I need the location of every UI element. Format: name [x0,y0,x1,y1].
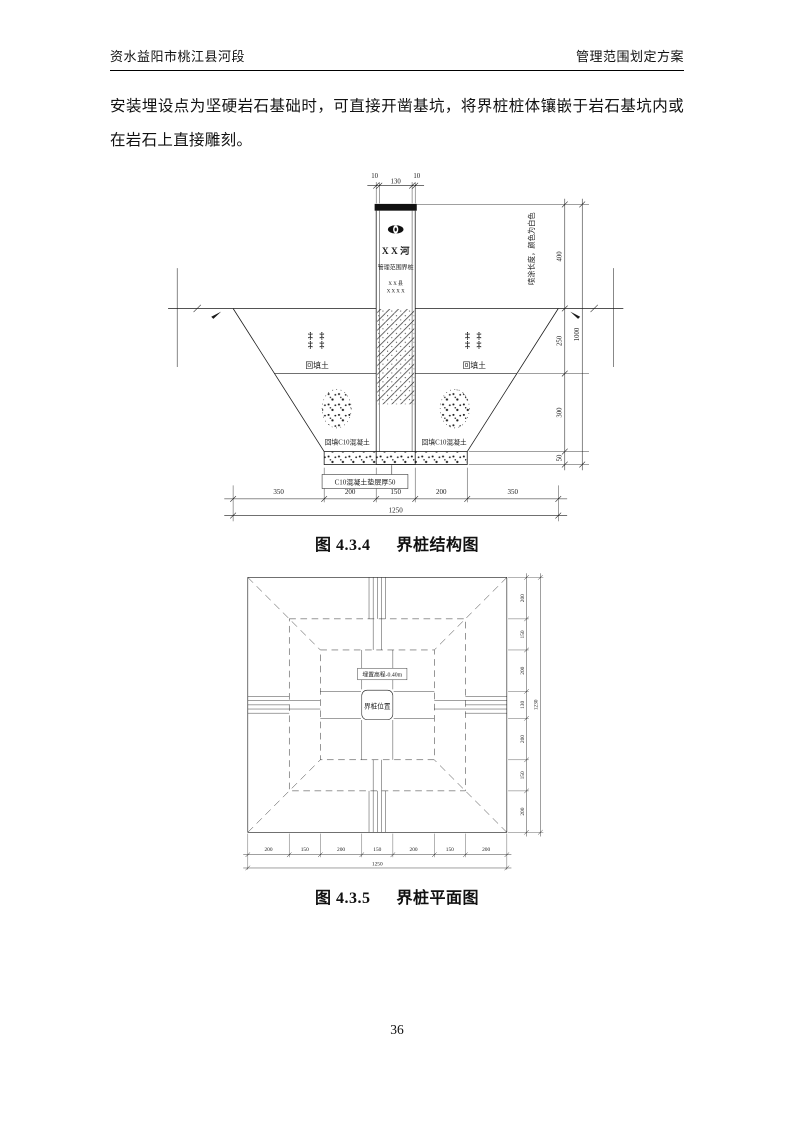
plan-dim-b1: 150 [301,847,309,853]
slope-arrow-icon [570,312,580,319]
dim-right-50: 50 [556,454,563,461]
plan-dim-b6: 200 [482,847,490,853]
pile-position-label: 界桩位置 [364,701,391,710]
plan-dim-r1: 150 [520,630,526,638]
plan-dim-b4: 200 [410,847,418,853]
dim-top-mid: 130 [391,179,402,186]
backfill-concrete-label: 回填C10混凝土 [325,437,370,446]
dim-top-left: 10 [371,173,378,180]
dim-right-total: 1000 [574,327,581,341]
dim-right-250: 250 [556,335,563,346]
dim-bot-2: 150 [390,488,401,496]
backfill-soil-label: 回填土 [305,360,329,370]
plan-bottom-dimension: 200 150 200 150 200 150 200 1250 [243,834,511,871]
dim-bot-4: 350 [507,488,518,496]
plan-dim-b2: 200 [337,847,345,853]
figure-plan-caption: 图 4.3.5界桩平面图 [315,884,479,908]
header-rule [110,70,684,71]
backfill-concrete-right: 回填C10混凝土 [422,389,470,446]
caption-number: 图 4.3.5 [315,890,371,907]
figure-structure: X X 河 管理范围界桩 X X 县 X X X X ‡ ‡ ‡ ‡ 回填土 ‡… [110,168,684,555]
plan-dim-r0: 200 [520,594,526,602]
plan-dim-r5: 150 [520,771,526,779]
backfill-concrete-left: 回填C10混凝土 [322,389,370,446]
plan-dim-b5: 150 [446,847,454,853]
figure-plan: 界桩位置 埋置高程-0.40m [110,565,684,908]
plan-dim-btotal: 1250 [372,861,383,867]
plan-dim-r2: 200 [520,666,526,674]
dim-bot-3: 200 [436,488,447,496]
caption-number: 图 4.3.4 [315,537,371,554]
backfill-soil-left: ‡ ‡ ‡ ‡ 回填土 [305,331,329,370]
boundary-pile [375,204,417,465]
cushion-label: C10混凝土垫层厚50 [335,477,396,486]
page-number: 36 [0,1022,794,1038]
plan-drawing: 界桩位置 埋置高程-0.40m [235,565,559,880]
plan-dim-b3: 150 [373,847,381,853]
pile-buried-hatch [377,309,414,404]
soil-hatch-icon: ‡ ‡ [308,340,327,351]
caption-title: 界桩结构图 [397,537,480,554]
dim-bot-1: 200 [345,488,356,496]
elevation-callout: 埋置高程-0.40m [358,668,407,680]
plan-dim-b0: 200 [264,847,272,853]
pile-line3: X X 县 [388,281,403,287]
document-page: 资水益阳市桃江县河段 管理范围划定方案 安装埋设点为坚硬岩石基础时，可直接开凿基… [0,0,794,1122]
structure-drawing: X X 河 管理范围界桩 X X 县 X X X X ‡ ‡ ‡ ‡ 回填土 ‡… [155,168,639,527]
backfill-concrete-label: 回填C10混凝土 [422,437,467,446]
plan-dim-r3: 130 [520,701,526,709]
bottom-dimension: 350 200 150 200 350 1250 [224,488,567,518]
aggregate-oval-icon [322,389,351,428]
right-dimension: 400 250 300 50 1000 喷涂长度，颜色为白色 [417,199,589,471]
soil-hatch-icon: ‡ ‡ [465,340,484,351]
dim-right-400: 400 [556,251,563,262]
pile-line2: 管理范围界桩 [378,263,414,271]
pile-emblem-icon [388,225,404,233]
dim-bot-total: 1250 [389,506,404,514]
plan-dim-r4: 200 [520,735,526,743]
plan-dim-r6: 200 [520,807,526,815]
slope-arrow-icon [211,312,221,319]
dim-right-300: 300 [556,407,563,418]
header-left-title: 资水益阳市桃江县河段 [110,46,245,65]
body-paragraph: 安装埋设点为坚硬岩石基础时，可直接开凿基坑，将界桩桩体镶嵌于岩石基坑内或在岩石上… [110,90,684,158]
paint-note: 喷涂长度，颜色为白色 [527,212,536,285]
dim-bot-0: 350 [273,488,284,496]
pile-cap [375,204,417,211]
plan-right-dimension: 200 150 200 130 200 150 200 1230 [508,573,543,836]
pile-river-name: X X 河 [382,245,410,257]
figure-structure-caption: 图 4.3.4界桩结构图 [315,531,479,555]
plan-dim-rtotal: 1230 [534,699,540,710]
pile-line4: X X X X [387,289,405,294]
dim-top-right: 10 [413,173,420,180]
page-header: 资水益阳市桃江县河段 管理范围划定方案 [110,46,684,65]
cushion-callout: C10混凝土垫层厚50 [322,465,408,488]
aggregate-oval-icon [440,389,469,428]
backfill-soil-label: 回填土 [463,360,487,370]
header-right-title: 管理范围划定方案 [576,46,684,65]
top-dimension: 10 130 10 [367,173,424,203]
backfill-soil-right: ‡ ‡ ‡ ‡ 回填土 [463,331,487,370]
concrete-cushion [324,452,467,465]
caption-title: 界桩平面图 [397,890,480,907]
